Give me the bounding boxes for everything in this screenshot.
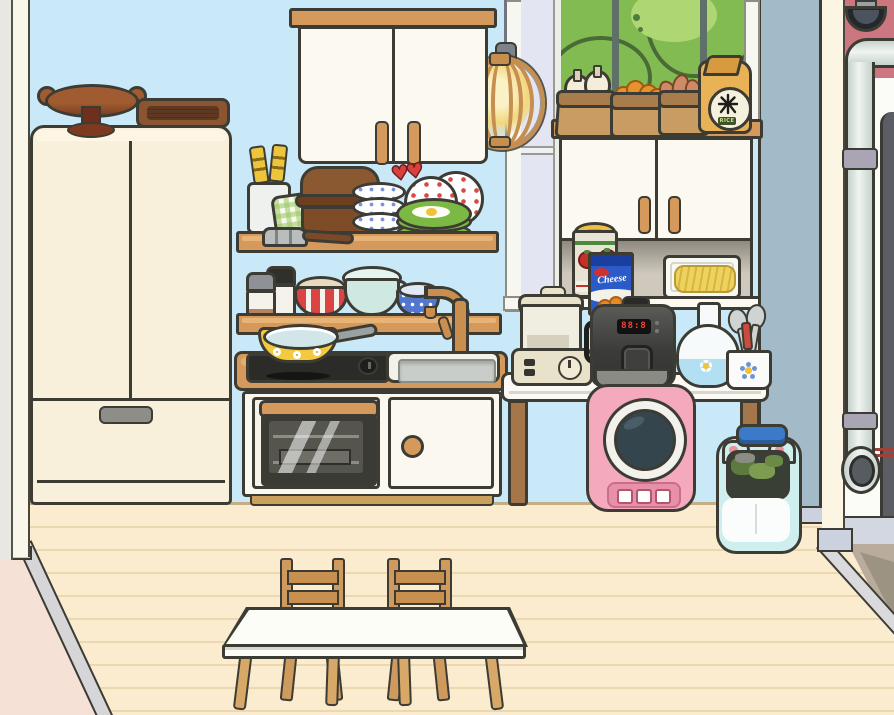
dining-table-apron <box>222 644 526 659</box>
flower-icon <box>745 367 752 374</box>
chair-leg <box>280 654 298 701</box>
cooker-display: 88:8 <box>617 319 651 334</box>
rice-bag-label: RICE <box>718 117 736 125</box>
fridge-drawer-line <box>33 398 229 401</box>
blender-base <box>511 348 593 386</box>
garlic-bag[interactable] <box>556 68 612 134</box>
kitchen-scene: ♥♥ <box>0 0 894 715</box>
blender[interactable] <box>508 286 590 382</box>
hutch-door-divider <box>655 140 658 238</box>
wall-pipe <box>845 62 875 464</box>
chair-slat <box>394 570 446 585</box>
bin-seam <box>755 504 757 534</box>
wall-cabinet-top <box>289 8 497 28</box>
cabinet-handle[interactable] <box>375 121 389 165</box>
hutch-handle[interactable] <box>668 196 681 234</box>
shaker-cap <box>246 272 276 292</box>
washer-control-panel <box>607 482 681 508</box>
serving-tray-inner <box>147 106 219 120</box>
oven-interior <box>269 421 363 473</box>
sink-basin <box>398 359 496 383</box>
faucet-spout <box>424 306 437 319</box>
serving-tray[interactable] <box>136 98 230 128</box>
lamp-bottom-knot <box>489 136 511 148</box>
window-pane-divider <box>521 146 555 155</box>
drum-shine <box>622 414 646 432</box>
toe-kick <box>250 494 494 506</box>
bag-fold <box>702 55 743 76</box>
bin-lower-panel <box>722 498 790 542</box>
lamp-cord <box>504 0 507 46</box>
chair-slat <box>287 590 339 605</box>
fridge-door-divider <box>129 141 132 398</box>
oven-door[interactable] <box>261 414 377 486</box>
washer-button[interactable] <box>655 489 671 504</box>
chair-leg <box>433 654 451 701</box>
pan-dot <box>273 348 281 356</box>
veggie-art <box>765 455 783 467</box>
veggie-art <box>735 453 755 463</box>
carrot-bag[interactable] <box>610 78 664 134</box>
lamp-top-knot <box>489 52 511 66</box>
pan-dot <box>313 348 321 356</box>
pipe-opening <box>849 455 875 487</box>
chair-slat <box>394 590 446 605</box>
fridge-drawer-handle[interactable] <box>99 406 153 424</box>
food-tray[interactable] <box>663 255 741 299</box>
cooker-button-dot[interactable] <box>655 321 659 325</box>
cabinet-door[interactable] <box>388 397 494 489</box>
cabinet-door-divider <box>392 29 395 161</box>
pipe-coupling <box>842 412 878 430</box>
bin-handle[interactable] <box>736 424 788 447</box>
chair-slat <box>287 570 339 585</box>
oven-glass-shine <box>269 421 363 473</box>
blender-dial[interactable] <box>558 356 582 380</box>
hearts-decoration[interactable]: ♥♥ <box>389 158 422 186</box>
left-wall-edge <box>0 0 13 560</box>
tree-leaf-dot <box>638 27 643 32</box>
box-top-band <box>591 255 634 266</box>
blender-button[interactable] <box>524 359 535 366</box>
wall-cabinet[interactable] <box>298 26 488 164</box>
flower-icon <box>703 363 709 369</box>
pet-carrier-bin[interactable] <box>714 424 798 550</box>
cooker-button-dot[interactable] <box>655 329 659 333</box>
pan-shadow <box>266 372 330 380</box>
spatula-head[interactable] <box>262 227 308 247</box>
rice-kanji-icon: 米 <box>716 92 740 116</box>
dining-table-leg <box>397 656 412 706</box>
washing-machine[interactable] <box>586 384 696 512</box>
refrigerator[interactable] <box>30 125 232 505</box>
pan-contents <box>263 324 339 350</box>
oven[interactable] <box>252 397 380 489</box>
fridge-base-line <box>37 480 225 483</box>
dining-table-leg <box>325 656 340 706</box>
pipe-coupling <box>842 148 878 170</box>
table-leg <box>508 400 528 506</box>
pan-dot <box>293 351 301 359</box>
dark-doorway <box>880 112 894 544</box>
rice-bag-emblem: 米 RICE <box>708 87 752 131</box>
rice-cooker[interactable]: 88:8 <box>584 296 674 384</box>
left-wall-strip <box>13 0 30 557</box>
cabinet-door-knob[interactable] <box>401 435 424 458</box>
washer-door-ring <box>603 398 687 482</box>
green-plate-top <box>396 198 472 230</box>
cooker-body: 88:8 <box>590 304 676 388</box>
faucet[interactable] <box>452 298 469 354</box>
side-baseboard <box>817 528 853 552</box>
utensil-cup-group[interactable] <box>724 308 770 384</box>
rice-bag[interactable]: 米 RICE <box>698 60 752 134</box>
washer-button[interactable] <box>617 489 633 504</box>
bin-window <box>726 450 790 500</box>
dining-table[interactable] <box>218 607 532 649</box>
hutch-handle[interactable] <box>638 196 651 234</box>
mac-and-cheese <box>674 265 736 293</box>
side-wall-strip <box>822 0 845 530</box>
blender-button[interactable] <box>524 369 535 376</box>
washer-drum[interactable] <box>614 409 676 471</box>
egg-yolk <box>426 208 437 216</box>
label-band <box>575 241 615 245</box>
fridge-top-face <box>35 130 227 141</box>
stove-knob[interactable] <box>358 357 378 375</box>
washer-button[interactable] <box>636 489 652 504</box>
sink[interactable] <box>386 351 500 383</box>
cake-stand-foot <box>67 122 115 138</box>
tree-leaf-dot <box>633 14 640 21</box>
sack-cuff <box>556 90 616 108</box>
utensil-cup <box>726 350 772 390</box>
